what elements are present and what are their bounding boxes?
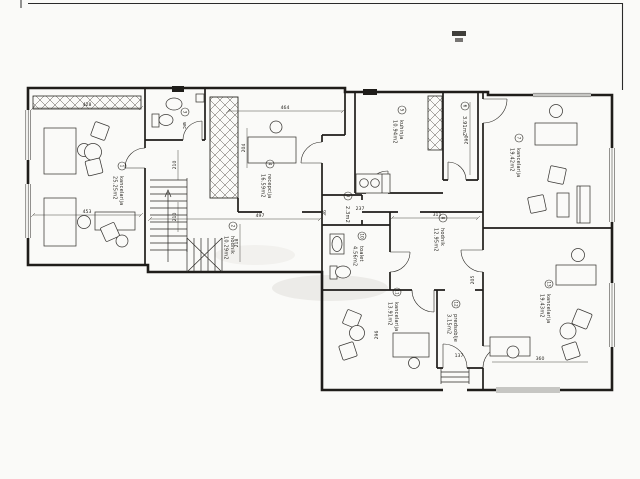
window-bottom-office [496,387,560,394]
window-right-1 [609,148,616,222]
sofa [577,186,590,223]
furniture-kitchen [356,174,390,193]
toilet-sink [332,237,342,252]
toilet-bowl [336,266,351,278]
door-office1 [125,148,145,168]
dim-text: 464 [281,105,290,111]
room-label-toilet: 10 toalet 4.56m2 [352,232,367,266]
dim-text: 137 [455,353,464,359]
door-toilet [390,252,410,272]
window-right-2 [609,283,616,347]
door-reception [301,142,322,163]
room-number: 9 [345,195,350,198]
furniture-reception [248,121,296,163]
room-label-reception: 4 recepcija 16.59m2 [260,160,275,198]
room-name: predsoblje [452,314,458,342]
room-area: 19.43m2 [539,294,545,318]
room-area: 3.15m2 [446,314,452,334]
room-label-office7: 7 kancelarija 19.42m2 [509,134,524,177]
furniture [44,94,596,369]
window-top-office [533,92,591,98]
wc-toilet-tank [152,114,159,127]
room-name: hodnik [439,228,445,246]
dim-text: 210 [172,213,178,222]
door-office7 [483,99,507,123]
scan-mark [455,38,463,42]
room-area: 12.95m2 [433,228,439,252]
room-name: kancelarija [545,294,551,323]
room-name: recepcija [266,174,272,198]
room-label-storage6: 6 3.91m2 [461,102,469,136]
room-area: 19.42m2 [509,148,515,172]
desk [535,123,577,145]
window-left-2 [25,184,32,238]
room-label-office11: 11 kancelarija 13.91m2 [387,288,402,331]
doors [125,99,507,384]
side-table [557,193,569,217]
room-name: kuhinja [398,120,404,140]
room-area: 13.91m2 [387,302,393,326]
dim-text: 296 [374,331,380,340]
vent-mark [172,86,184,92]
dim-text: 453 [83,209,92,215]
entrance-steps [441,368,469,384]
room-area: 10.94m2 [392,120,398,144]
desk [393,333,429,357]
dim-text: 205 [470,276,476,285]
door-office11 [412,290,434,312]
door-hall-office13 [461,250,483,272]
dim-text: 497 [256,213,265,219]
room-label-wc: 3 wc [181,108,189,129]
room-area: 10.29m2 [223,236,229,260]
dim-text: 210 [172,161,178,170]
room-number: 1 [119,165,124,168]
room-area: 16.59m2 [260,174,266,198]
dim-text: 428 [83,102,92,108]
room-number: 4 [267,163,272,166]
room-label-office13: 13 kancelarija 19.43m2 [539,280,554,323]
vent-mark [363,89,377,95]
dim-text: 36 [322,210,328,216]
floor-plan-canvas: 1 kancelarija 25.25m2 2 hodnik 10.29m2 3… [0,0,640,479]
room-label-hall: 8 hodnik 12.95m2 [433,214,448,252]
closet-strip [210,97,238,198]
room-number: 2 [230,225,235,228]
room-name: kancelarija [393,302,399,331]
room-number: 13 [546,281,551,287]
room-number: 12 [453,301,458,307]
dim-text: 204 [241,144,247,153]
room-label-kitchen: 5 kuhinja 10.94m2 [392,106,407,144]
room-number: 5 [399,109,404,112]
room-name: toalet [358,246,364,262]
scan-mark [452,31,466,36]
room-name: wc [181,122,187,129]
room-label-storage9: 9 2.3m2 [344,192,352,223]
room-area: 3.91m2 [461,116,467,136]
dim-text: 311 [433,212,442,218]
reception-desk [248,137,296,163]
dim-text: 237 [356,206,365,212]
wc-toilet [159,115,173,126]
room-number: 10 [359,233,364,239]
entrance-wall-gap [443,386,467,394]
room-number: 3 [182,111,187,114]
dim-text: 290 [464,136,470,145]
round-table [350,326,365,341]
room-label-office1: 1 kancelarija 25.25m2 [112,162,127,205]
room-area: 4.56m2 [352,246,358,266]
room-area: 2.3m2 [344,206,350,223]
furniture-office11 [339,309,429,368]
room-area: 25.25m2 [112,176,118,200]
dim-text: 360 [536,356,545,362]
dim-text: 218 [234,239,240,248]
furniture-office7 [528,105,590,224]
room-number: 11 [394,289,399,295]
room-name: kancelarija [118,176,124,205]
window-left-1 [25,110,32,160]
wc-sink [166,98,182,110]
desk [556,265,596,285]
room-number: 7 [516,137,521,140]
room-label-vestibule: 12 predsoblje 3.15m2 [446,300,461,342]
door-storage-passage [448,162,466,180]
room-number: 6 [462,105,467,108]
round-table [560,323,576,339]
scanned-floor-plan-page: 1 kancelarija 25.25m2 2 hodnik 10.29m2 3… [0,0,640,479]
radiator-strip [428,96,442,150]
room-name: kancelarija [515,148,521,177]
furniture-toilet [330,234,351,279]
